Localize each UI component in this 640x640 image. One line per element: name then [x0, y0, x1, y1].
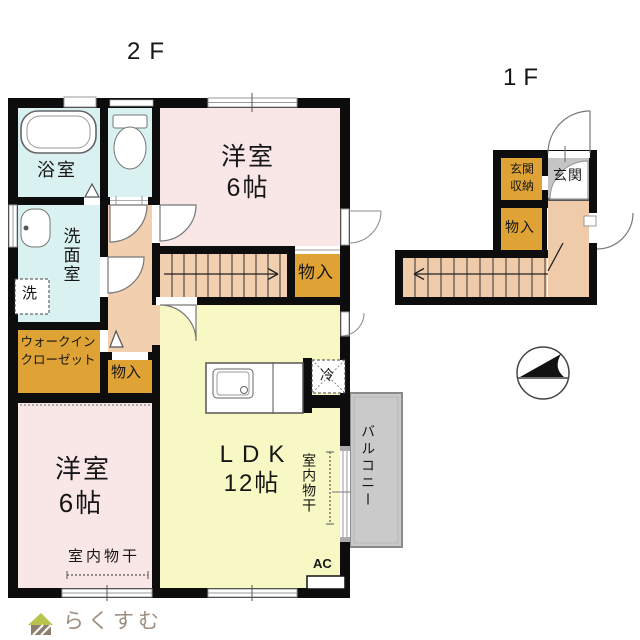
balcony-label: バルコニー [360, 424, 376, 509]
stairs-closet-label: 物入 [298, 263, 334, 283]
bathtub [21, 111, 96, 153]
kitchen-sink [213, 369, 253, 398]
casement-arc-bedroom [349, 211, 381, 243]
stairs1f-area [403, 258, 547, 297]
washbasin-faucet [24, 226, 29, 231]
bedroom-upper-name: 洋室 [221, 143, 275, 172]
washroom-label: 洗面室 [60, 227, 80, 284]
window-bath [64, 97, 96, 107]
laundry-label: 洗 [22, 285, 37, 302]
toilet-bowl [114, 127, 146, 169]
hall1f-area [548, 201, 589, 297]
entrance-storage-label: 玄関 収納 [510, 161, 534, 196]
entrance-label: 玄関 [553, 167, 583, 183]
fridge-label: 冷 [320, 367, 334, 383]
indoor-drying-ldk-label: 室内物干 [301, 453, 317, 513]
opening-entrance-storage [542, 176, 548, 190]
hall-ldk-passage [152, 302, 160, 345]
floor-plan: 2F 1F 浴室 洗面室 洗 ウォークイン クローゼット 物入 洋室 6帖 物入… [0, 0, 640, 640]
opening-washroom [100, 257, 108, 295]
bedroom-lower-size: 6帖 [59, 489, 103, 519]
logo-house-icon [28, 613, 53, 635]
door-1f-side-leaf [584, 216, 596, 226]
bath-label: 浴室 [37, 160, 77, 181]
balcony-sliding-door [340, 446, 350, 542]
floor2-title: 2F [127, 38, 173, 66]
opening-wic [100, 330, 108, 352]
compass-icon [517, 347, 569, 399]
opening-bedroom-upper [152, 205, 160, 243]
window-bedroom-upper-right [341, 209, 349, 245]
floor1-title: 1F [503, 64, 545, 92]
closet1f-label: 物入 [505, 219, 535, 235]
ac-label: AC [313, 557, 332, 572]
logo-text: らくすむ [63, 610, 163, 634]
door-1f-side-arc [597, 213, 633, 249]
bedroom-lower-name: 洋室 [55, 455, 111, 485]
door-entrance-arc [548, 111, 590, 153]
opening-hall-closet [112, 352, 148, 360]
indoor-drying-bedroom-label: 室内物干 [68, 548, 140, 565]
floor-plan-drawing [0, 0, 640, 640]
window-toilet [110, 100, 153, 106]
ldk-size: 12帖 [224, 470, 281, 498]
walkin-closet-label: ウォークイン クローゼット [20, 333, 95, 369]
opening-bath [84, 197, 100, 205]
ac-outdoor-unit [307, 576, 345, 589]
opening-entrance [548, 151, 590, 158]
ldk-name: LDK [211, 441, 294, 469]
hall-closet-label: 物入 [111, 364, 141, 381]
toilet-tank [113, 115, 147, 128]
bedroom-upper-size: 6帖 [227, 174, 270, 203]
window-ldk-right [341, 312, 349, 336]
opening-ldk [156, 297, 197, 305]
